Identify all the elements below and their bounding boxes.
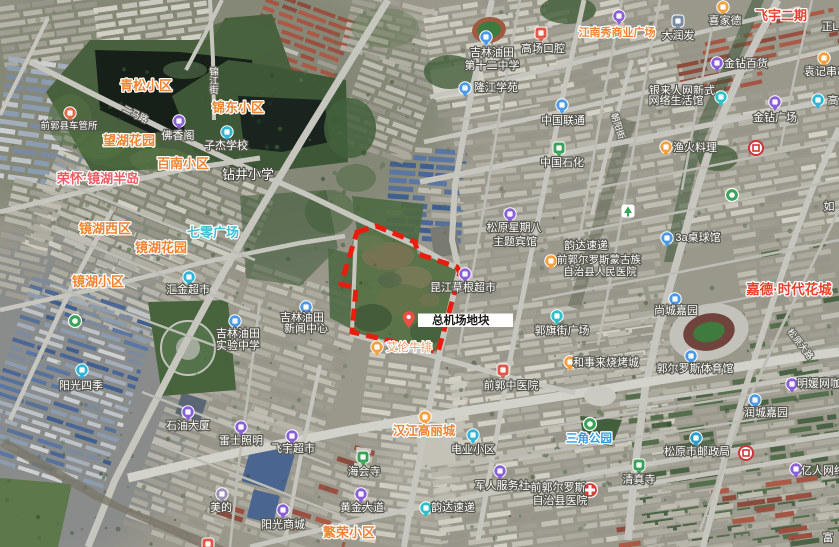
svg-text:前郭尔罗斯: 前郭尔罗斯 <box>531 480 586 494</box>
svg-text:前郭中医院: 前郭中医院 <box>484 378 539 392</box>
svg-text:七零广场: 七零广场 <box>187 225 239 240</box>
svg-text:郭尔罗斯体育馆: 郭尔罗斯体育馆 <box>657 361 734 375</box>
svg-text:第十二中学: 第十二中学 <box>465 58 520 72</box>
svg-text:三角公园: 三角公园 <box>566 431 612 445</box>
svg-text:子杰学校: 子杰学校 <box>204 138 248 152</box>
svg-text:望湖花园: 望湖花园 <box>103 133 155 148</box>
svg-text:镜湖小区: 镜湖小区 <box>72 274 124 289</box>
svg-text:百南小区: 百南小区 <box>157 156 209 171</box>
svg-text:雷士照明: 雷士照明 <box>219 434 263 447</box>
svg-text:佛香阁: 佛香阁 <box>162 128 195 142</box>
svg-text:明媛网咖: 明媛网咖 <box>797 376 839 390</box>
svg-text:海会寺: 海会寺 <box>348 464 381 478</box>
svg-text:阳光商城: 阳光商城 <box>261 517 305 531</box>
svg-text:和事来烧烤城: 和事来烧烤城 <box>573 355 639 369</box>
svg-text:吉林油田: 吉林油田 <box>216 326 260 340</box>
svg-text:主题宾馆: 主题宾馆 <box>493 234 537 248</box>
svg-text:电业小区: 电业小区 <box>451 443 495 456</box>
svg-text:汇金超市: 汇金超市 <box>166 282 210 296</box>
svg-text:清真寺: 清真寺 <box>623 472 656 486</box>
svg-text:阳光四季: 阳光四季 <box>59 378 103 392</box>
svg-text:大润发: 大润发 <box>662 28 695 42</box>
svg-text:前郭县车管所: 前郭县车管所 <box>40 120 98 132</box>
svg-text:亿人网络: 亿人网络 <box>801 463 839 477</box>
svg-text:尚城嘉园: 尚城嘉园 <box>654 303 698 317</box>
svg-text:自治县医院: 自治县医院 <box>533 493 588 507</box>
svg-text:汉江高丽城: 汉江高丽城 <box>393 423 456 438</box>
svg-text:镜湖西区: 镜湖西区 <box>79 221 131 236</box>
svg-text:繁荣小区: 繁荣小区 <box>323 525 375 540</box>
svg-text:飞宇超市: 飞宇超市 <box>271 441 315 455</box>
svg-text:新闻中心: 新闻中心 <box>284 321 328 335</box>
svg-text:镜湖花园: 镜湖花园 <box>135 240 187 255</box>
svg-text:金钻百货: 金钻百货 <box>724 56 768 70</box>
svg-text:美的: 美的 <box>210 500 232 514</box>
svg-text:网络生活馆: 网络生活馆 <box>649 93 704 107</box>
svg-text:隆江学苑: 隆江学苑 <box>474 80 518 94</box>
svg-text:吉林油田: 吉林油田 <box>280 310 324 324</box>
svg-text:韵达速递: 韵达速递 <box>431 500 475 514</box>
svg-text:吉林油田: 吉林油田 <box>470 45 514 59</box>
svg-text:艾伦牛排: 艾伦牛排 <box>386 340 432 354</box>
svg-text:自治县人民医院: 自治县人民医院 <box>563 265 637 278</box>
svg-text:昆江草根超市: 昆江草根超市 <box>430 280 496 294</box>
svg-text:渔火料理: 渔火料理 <box>673 140 717 154</box>
svg-text:锦东小区: 锦东小区 <box>212 100 264 115</box>
svg-text:正L: 正L <box>821 21 838 33</box>
svg-text:松原市邮政局: 松原市邮政局 <box>664 444 730 458</box>
svg-text:石油大厦: 石油大厦 <box>166 418 210 432</box>
svg-text:军人服务社: 军人服务社 <box>475 478 530 492</box>
svg-text:江南秀商业广场: 江南秀商业广场 <box>579 25 656 39</box>
svg-text:荣怀·镜湖半岛: 荣怀·镜湖半岛 <box>56 171 139 186</box>
svg-text:松原星期八: 松原星期八 <box>487 220 542 234</box>
svg-text:总机场地块: 总机场地块 <box>432 313 490 327</box>
svg-text:街: 街 <box>209 84 218 95</box>
svg-text:钻井小学: 钻井小学 <box>222 167 274 182</box>
svg-text:青松小区: 青松小区 <box>120 78 172 93</box>
svg-text:韵达速递: 韵达速递 <box>564 238 608 252</box>
svg-text:飞宇二期: 飞宇二期 <box>755 8 807 23</box>
svg-text:富: 富 <box>823 530 834 544</box>
svg-text:金钻广场: 金钻广场 <box>753 110 797 124</box>
svg-text:中国联通: 中国联通 <box>541 114 585 127</box>
svg-text:前郭尔罗斯蒙古族: 前郭尔罗斯蒙古族 <box>557 253 641 266</box>
svg-text:高场口腔: 高场口腔 <box>521 41 565 55</box>
svg-text:喜家德: 喜家德 <box>709 13 742 27</box>
svg-text:3a桌球馆: 3a桌球馆 <box>675 230 720 244</box>
svg-text:润城嘉园: 润城嘉园 <box>744 405 788 419</box>
svg-text:郭旗街广场: 郭旗街广场 <box>535 323 590 337</box>
svg-text:中国石化: 中国石化 <box>540 155 584 169</box>
svg-text:实验中学: 实验中学 <box>216 338 260 352</box>
svg-text:如: 如 <box>824 199 835 213</box>
svg-text:袁记串串: 袁记串串 <box>804 65 839 78</box>
svg-text:黄金大道: 黄金大道 <box>340 500 384 514</box>
svg-text:嘉德·时代花城: 嘉德·时代花城 <box>745 281 832 297</box>
svg-text:高: 高 <box>828 93 839 107</box>
